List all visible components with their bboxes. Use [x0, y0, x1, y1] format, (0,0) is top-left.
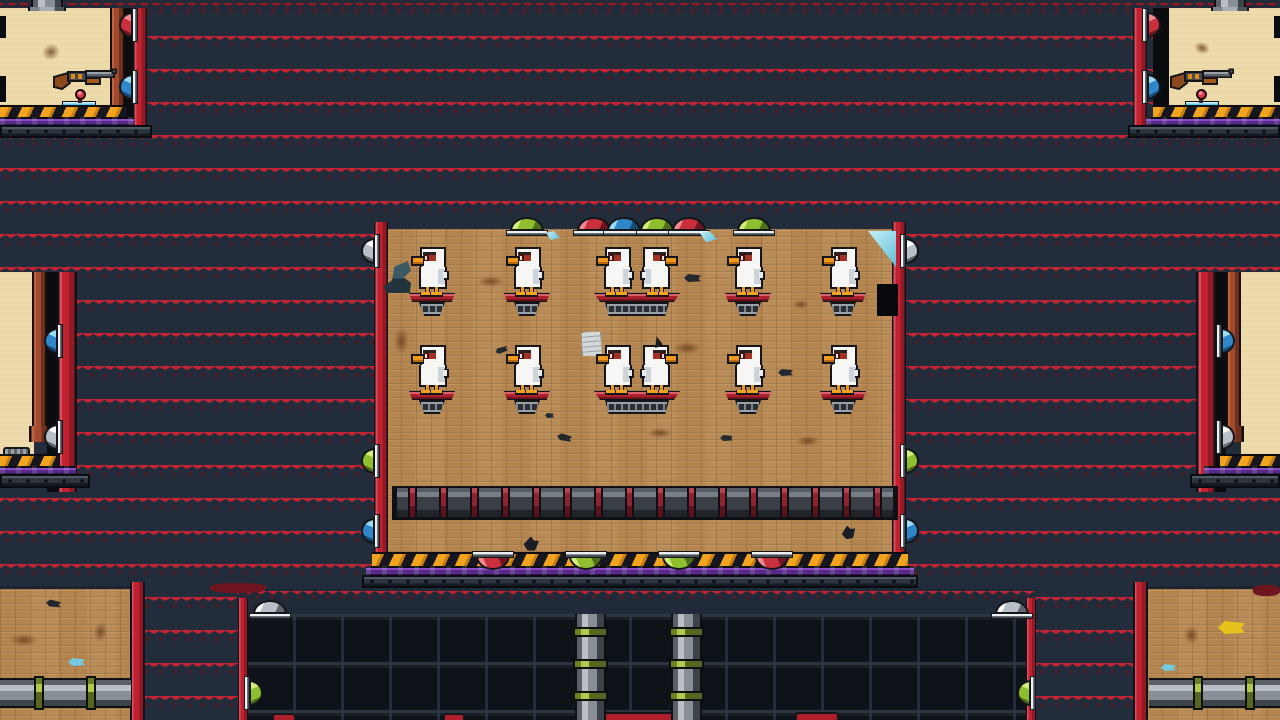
pipe-coupling [873, 486, 882, 520]
metal-base [0, 125, 152, 138]
dome-base [132, 8, 138, 42]
dome-light-blue [361, 518, 375, 544]
dome-base [1142, 70, 1148, 104]
pipe-coupling [470, 486, 479, 520]
pipe-coupling [408, 486, 417, 520]
stain [1183, 625, 1201, 645]
dome-base [1216, 420, 1222, 454]
room-wall [1241, 272, 1280, 456]
pipe-flange [28, 7, 66, 11]
duck[interactable] [636, 345, 678, 395]
red-beam [130, 582, 145, 720]
dome-light-red [672, 217, 706, 231]
duck[interactable] [822, 247, 864, 297]
duck[interactable] [506, 247, 548, 297]
duck[interactable] [596, 247, 638, 297]
dome-base [991, 613, 1033, 619]
dome-light-green [510, 217, 544, 231]
paint-blotch [210, 583, 266, 593]
perch-stand [605, 400, 669, 414]
dome-base [900, 234, 906, 268]
pipe-flange [1211, 7, 1249, 11]
pipe-band [34, 676, 44, 710]
duck[interactable] [411, 345, 453, 395]
duck[interactable] [596, 345, 638, 395]
dome-base [1030, 676, 1036, 710]
stain [478, 276, 504, 287]
dome-base [1142, 8, 1148, 42]
stain [648, 428, 672, 438]
dome-base [249, 613, 291, 619]
edge-fixture [1274, 76, 1280, 102]
wood-pillar [32, 272, 47, 442]
dome-base [244, 676, 250, 710]
horizontal-pipe [1149, 678, 1280, 708]
dome-light-blue [905, 518, 919, 544]
game-viewport [0, 0, 1280, 720]
dome-base [374, 444, 380, 478]
red-beam [57, 272, 77, 492]
pipe-band [573, 691, 608, 701]
pipe-coupling [718, 486, 727, 520]
pipe-coupling [687, 486, 696, 520]
edge-fixture [1274, 16, 1280, 38]
duck[interactable] [636, 247, 678, 297]
dome-base [1216, 324, 1222, 358]
red-band [237, 588, 1035, 615]
pipe-band [669, 659, 704, 669]
red-ledge [443, 713, 465, 720]
dome-light-green [361, 448, 375, 474]
grate-wall [245, 614, 1026, 720]
pipe-coupling [656, 486, 665, 520]
metal-base [1190, 474, 1280, 488]
wood-pillar [1226, 272, 1241, 442]
metal-base [1128, 125, 1280, 138]
pipe-coupling [532, 486, 541, 520]
pipe-band [1193, 676, 1203, 710]
pipe-band [573, 627, 608, 637]
red-beam [1196, 272, 1216, 492]
dome-base [374, 234, 380, 268]
wall-notch [877, 284, 898, 316]
dome-base [658, 551, 700, 558]
pipe-coupling [749, 486, 758, 520]
pipe-coupling [625, 486, 634, 520]
pipe-coupling [501, 486, 510, 520]
pipe-band [669, 691, 704, 701]
dome-base [374, 514, 380, 548]
pipe-band [86, 676, 96, 710]
pipe-coupling [842, 486, 851, 520]
dome-light-silver [905, 238, 919, 264]
dome-base [472, 551, 514, 558]
pipe-band [573, 659, 608, 669]
duck[interactable] [506, 345, 548, 395]
perch-stand [605, 302, 669, 316]
dome-light-blue [607, 217, 641, 231]
room-wall [1168, 8, 1280, 107]
pipe-coupling [594, 486, 603, 520]
stain [394, 328, 409, 354]
dome-base [506, 230, 548, 236]
dome-light-green [737, 217, 771, 231]
red-ledge [600, 712, 678, 720]
stain [796, 436, 820, 446]
spawn-pin[interactable] [75, 89, 86, 100]
dome-base [57, 324, 63, 358]
dome-base [733, 230, 775, 236]
dome-light-red [577, 217, 611, 231]
dome-light-green [905, 448, 919, 474]
duck[interactable] [411, 247, 453, 297]
stain [793, 300, 809, 309]
pipe-coupling [563, 486, 572, 520]
spawn-pin[interactable] [1196, 89, 1207, 100]
edge-fixture [0, 16, 6, 38]
dome-light-silver [361, 238, 375, 264]
red-beam [1133, 582, 1148, 720]
metal-base [0, 474, 90, 488]
pipe-coupling [439, 486, 448, 520]
duck[interactable] [727, 345, 769, 395]
metal-base [362, 575, 918, 588]
dome-base [132, 70, 138, 104]
pipe-coupling [811, 486, 820, 520]
dome-light-green [640, 217, 674, 231]
horizontal-pipe [0, 678, 131, 708]
shotgun[interactable] [53, 66, 117, 92]
dome-base [565, 551, 607, 558]
duck[interactable] [727, 247, 769, 297]
stain [10, 634, 38, 646]
red-ledge [272, 713, 296, 720]
pipe-band [669, 627, 704, 637]
red-ledge [795, 712, 839, 720]
red-band [0, 0, 1280, 10]
floor-vent [3, 447, 30, 456]
dome-base [57, 420, 63, 454]
edge-fixture [0, 76, 6, 102]
pipe-band [1245, 676, 1255, 710]
paint-blotch [1253, 585, 1280, 596]
pipe-coupling [780, 486, 789, 520]
dome-base [751, 551, 793, 558]
duck[interactable] [822, 345, 864, 395]
horizontal-pipe-large [392, 486, 898, 520]
dome-base [900, 444, 906, 478]
dome-base [900, 514, 906, 548]
